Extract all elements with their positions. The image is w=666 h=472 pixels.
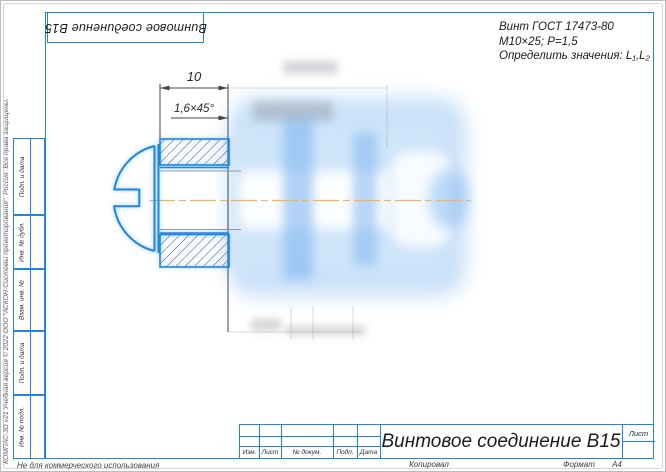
drawing-frame — [45, 12, 654, 459]
non-commercial-watermark: Не для коммерческого использования — [17, 461, 159, 470]
side-column-block: Подп. и дата Инв. № дубл. Взам. инв. № П… — [13, 138, 45, 459]
side-cell-vzam-inv: Взам. инв. № — [13, 269, 45, 331]
tb-col-izm: Изм. — [240, 446, 259, 458]
tb-line — [240, 436, 380, 437]
side-label: Инв. № подл. — [19, 407, 26, 447]
rotated-stamp-title: Винтовое соединение В15 — [45, 21, 207, 35]
drawing-title: Винтовое соединение В15 — [378, 425, 624, 458]
task-line-2: М10×25; Р=1,5 — [499, 35, 650, 50]
side-cell-podp-data-2: Подп. и дата — [13, 331, 45, 395]
cell-divider — [30, 332, 31, 394]
side-label: Взам. инв. № — [19, 280, 26, 320]
title-block: Изм. Лист № докум. Подп. Дата Винтовое с… — [239, 424, 654, 459]
tb-col-docum: № докум. — [281, 446, 333, 458]
cell-divider — [30, 396, 31, 458]
task-line-3: Определить значения: L₁,L₂ — [499, 49, 650, 64]
side-cell-podp-data-1: Подп. и дата — [13, 138, 45, 215]
tb-col-list: Лист — [259, 446, 281, 458]
side-label: Подп. и дата — [19, 343, 26, 384]
drawing-sheet: 10 1,6×45° Винтовое соединение В15 — [0, 0, 666, 472]
rotated-stamp-box: Винтовое соединение В15 — [47, 12, 204, 43]
task-line-1: Винт ГОСТ 17473-80 — [499, 20, 650, 35]
kompas-version-watermark: КОМПАС-3D v21 Учебная версия © 2022 ООО … — [3, 98, 10, 464]
sheet-label: Лист — [622, 425, 655, 441]
side-cell-inv-podl: Инв. № подл. — [13, 395, 45, 459]
tb-col-podp: Подп. — [333, 446, 357, 458]
side-label: Инв. № дубл. — [19, 222, 26, 262]
cell-divider — [30, 270, 31, 330]
cell-divider — [30, 139, 31, 214]
task-note: Винт ГОСТ 17473-80 М10×25; Р=1,5 Определ… — [499, 20, 650, 64]
cell-divider — [30, 216, 31, 268]
kopiroval-label: Копировал — [399, 460, 459, 469]
format-value: А4 — [605, 460, 629, 469]
side-cell-inv-dubl: Инв. № дубл. — [13, 215, 45, 269]
tb-line — [622, 441, 655, 442]
side-label: Подп. и дата — [19, 156, 26, 197]
tb-col-data: Дата — [357, 446, 380, 458]
format-label: Формат — [557, 460, 601, 469]
